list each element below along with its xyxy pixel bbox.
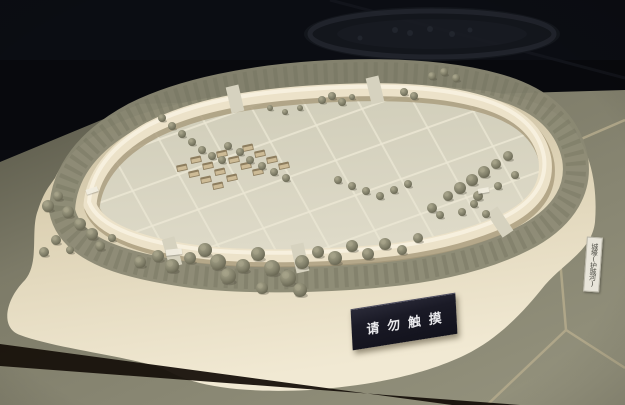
museum-model-photo: 请勿触摸 城壕(护城河) [0,0,625,405]
model-scene [0,0,625,405]
distant-model [304,7,560,61]
